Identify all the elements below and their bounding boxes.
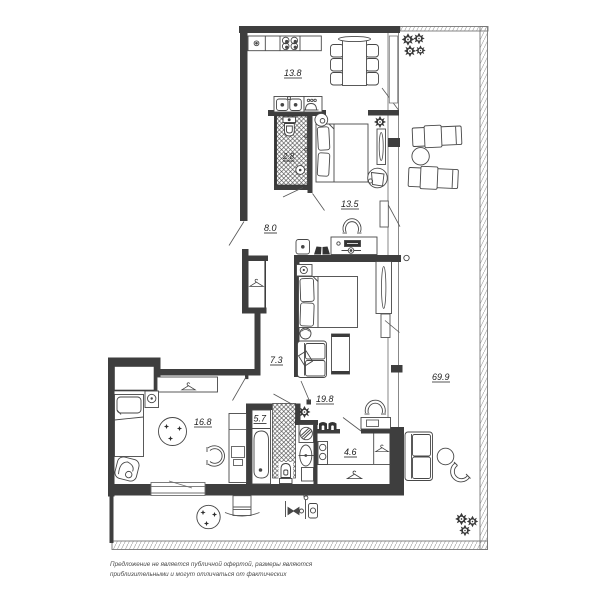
svg-text:приблизительными и могут отлич: приблизительными и могут отличаться от ф… <box>110 570 287 578</box>
svg-text:8.0: 8.0 <box>264 223 277 233</box>
svg-text:13.5: 13.5 <box>341 199 360 209</box>
svg-text:16.8: 16.8 <box>194 417 212 427</box>
svg-text:19.8: 19.8 <box>316 394 334 404</box>
svg-text:Предложение не является публич: Предложение не является публичной оферто… <box>110 560 313 568</box>
svg-text:7.3: 7.3 <box>270 355 283 365</box>
svg-text:69.9: 69.9 <box>432 372 450 382</box>
svg-text:13.8: 13.8 <box>284 68 302 78</box>
svg-text:4.6: 4.6 <box>344 447 357 457</box>
svg-text:5.7: 5.7 <box>254 414 268 424</box>
svg-text:2.8: 2.8 <box>282 152 295 161</box>
